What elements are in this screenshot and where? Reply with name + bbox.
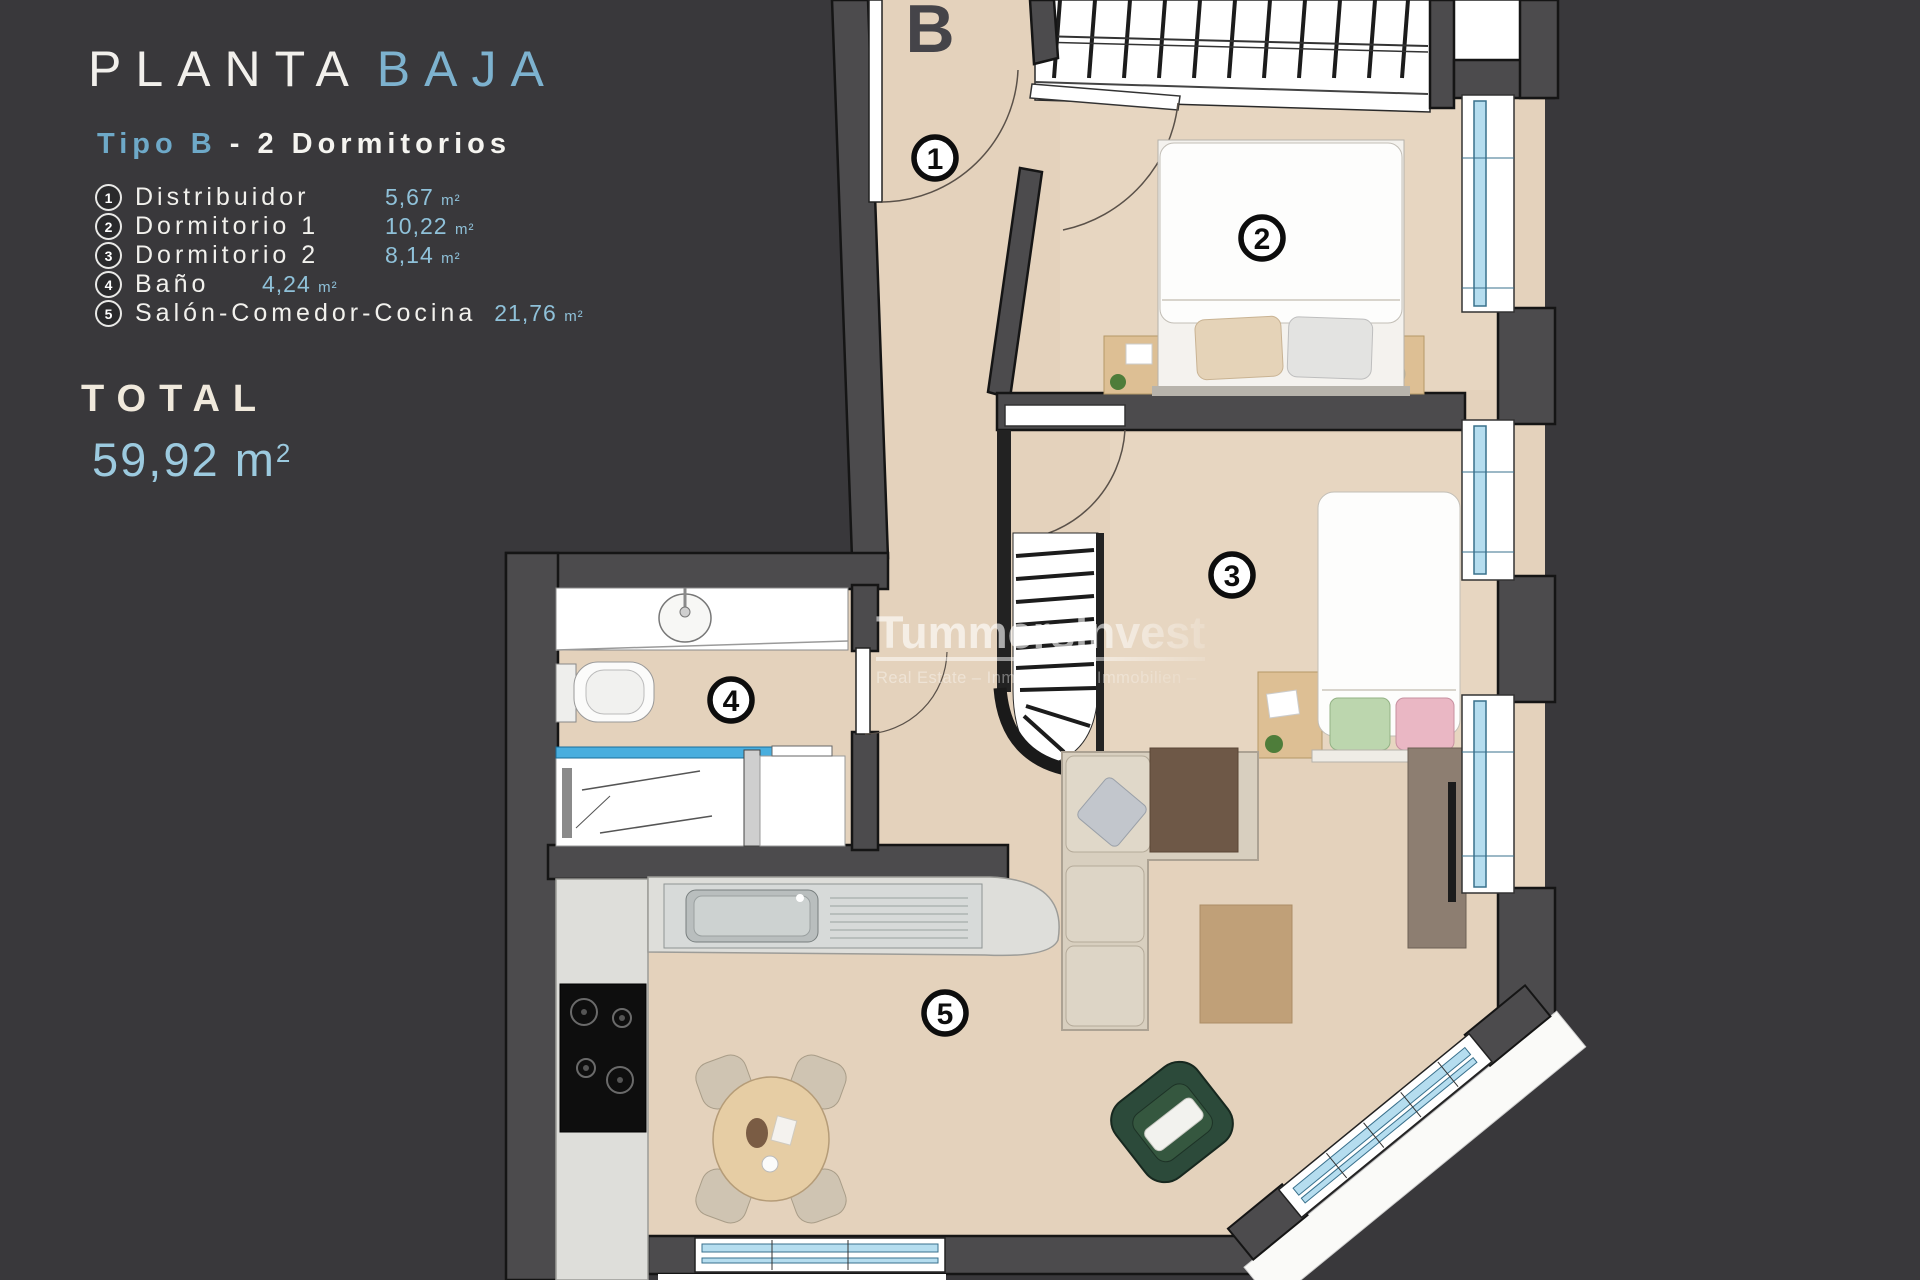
block-label: B xyxy=(905,0,954,67)
svg-text:1: 1 xyxy=(927,143,944,176)
wall-left-lower xyxy=(506,553,558,1280)
wall-bath-right-b xyxy=(852,732,878,850)
shower-partition xyxy=(744,750,760,846)
marker-dormitorio2: 3 xyxy=(1211,554,1253,596)
wall-right-top xyxy=(1520,0,1558,98)
table-decor xyxy=(746,1118,768,1148)
coffee-table xyxy=(1200,905,1292,1023)
dining-set xyxy=(691,1051,850,1228)
marker-bano: 4 xyxy=(710,679,752,721)
pillow-gray xyxy=(1287,317,1373,380)
pillow-pink xyxy=(1396,698,1454,750)
bath-niche xyxy=(760,756,845,846)
floorplan-page: PLANTABAJA Tipo B - 2 Dormitorios 1 Dist… xyxy=(0,0,1920,1280)
floorplan-drawing: B 1 2 3 4 5 xyxy=(0,0,1920,1280)
plant xyxy=(1265,735,1283,753)
pillow-green xyxy=(1330,698,1390,750)
wall-bath-right-a xyxy=(852,585,878,651)
window-dormitorio1 xyxy=(1462,95,1514,312)
wall-stairs-left-thin xyxy=(997,430,1011,692)
window-dormitorio2 xyxy=(1462,420,1514,580)
svg-text:3: 3 xyxy=(1224,560,1241,593)
pillow-beige xyxy=(1194,316,1283,380)
kitchen-sink xyxy=(664,884,982,948)
wall-bathroom-bottom xyxy=(548,845,1008,879)
wall-right-mid1 xyxy=(1498,308,1555,424)
cooktop xyxy=(560,984,646,1132)
toilet xyxy=(556,662,654,722)
marker-salon: 5 xyxy=(924,992,966,1034)
sideboard xyxy=(1408,748,1466,948)
tv xyxy=(1448,782,1456,902)
marker-dormitorio1: 2 xyxy=(1241,217,1283,259)
headboard xyxy=(1152,386,1410,396)
wall-bathroom-top xyxy=(506,553,888,589)
landing-room xyxy=(1454,0,1520,60)
svg-text:4: 4 xyxy=(723,685,740,718)
wall-hall-slant-a xyxy=(1030,0,1058,64)
sofa-cushion xyxy=(1066,946,1144,1026)
wall-right-mid2 xyxy=(1498,576,1555,702)
svg-text:5: 5 xyxy=(937,998,954,1031)
sofa-blanket xyxy=(1150,748,1238,852)
svg-text:2: 2 xyxy=(1254,223,1271,256)
wall-stairs-right xyxy=(1430,0,1454,108)
terrace-strip xyxy=(658,1274,946,1280)
plant xyxy=(1110,374,1126,390)
sofa-cushion xyxy=(1066,866,1144,942)
window-salon-right xyxy=(1462,695,1514,893)
marker-distribuidor: 1 xyxy=(914,137,956,179)
